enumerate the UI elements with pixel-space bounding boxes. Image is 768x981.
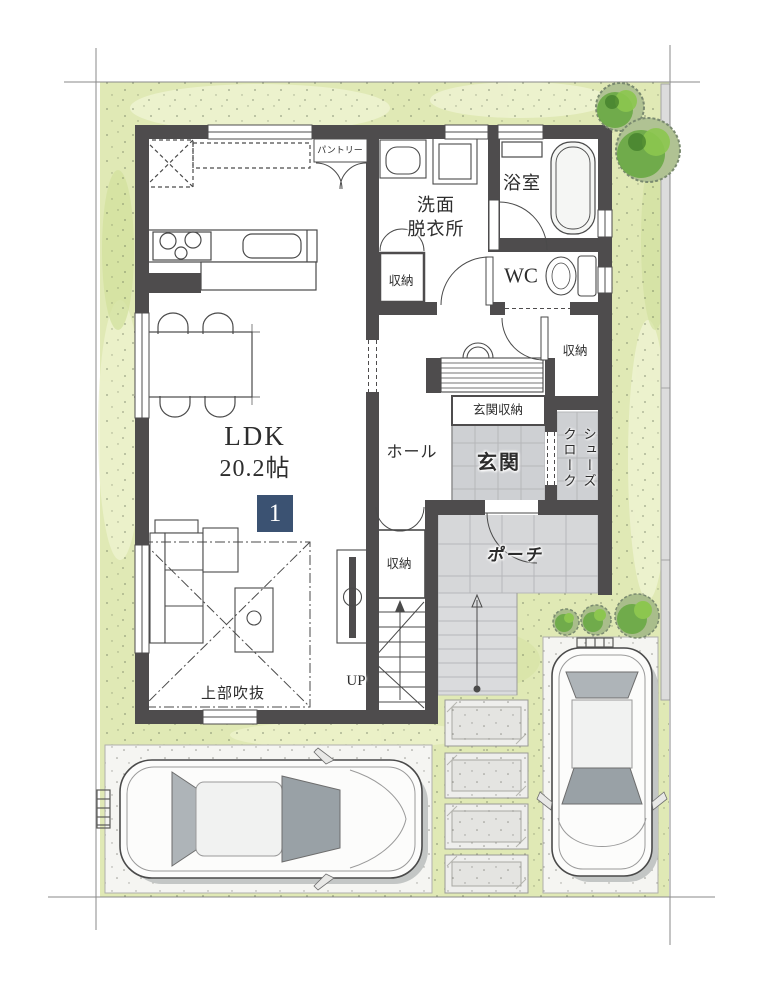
sofa-back bbox=[150, 533, 165, 643]
label-storage-stairs: 収納 bbox=[386, 558, 411, 572]
washbasin bbox=[380, 140, 426, 178]
ottoman bbox=[203, 528, 238, 572]
label-storage-washroom: 収納 bbox=[388, 275, 413, 289]
label-hall: ホール bbox=[386, 444, 437, 462]
floor-plan-page: パントリー 洗面 脱衣所 浴室 WC 収納 収納 収納 ホール 玄関 玄関収納 … bbox=[0, 0, 768, 981]
car-left bbox=[120, 748, 428, 890]
sofa-seat bbox=[165, 533, 203, 643]
label-shoes-cloak: シューズ クローク bbox=[556, 410, 598, 506]
label-void: 上部吹抜 bbox=[201, 686, 265, 703]
label-genkan-storage: 玄関収納 bbox=[473, 404, 523, 418]
label-wc: WC bbox=[504, 264, 538, 287]
toilet bbox=[546, 256, 596, 296]
counter-table bbox=[201, 262, 316, 290]
label-washroom-2: 脱衣所 bbox=[408, 220, 465, 240]
bush bbox=[553, 609, 579, 635]
bush bbox=[615, 594, 659, 638]
bush bbox=[581, 605, 611, 635]
car-right bbox=[537, 648, 667, 882]
label-ldk-size: 20.2帖 bbox=[220, 456, 291, 482]
label-washroom-1: 洗面 bbox=[417, 196, 455, 216]
bath-shelf bbox=[502, 142, 542, 157]
label-genkan: 玄関 bbox=[477, 452, 521, 474]
console-table bbox=[155, 520, 198, 533]
stepping-stones bbox=[445, 700, 528, 893]
bath-door-leaf bbox=[489, 200, 499, 250]
washing-machine bbox=[433, 138, 477, 184]
label-storage-hall: 収納 bbox=[562, 345, 587, 359]
hall-storage-door-leaf bbox=[541, 317, 548, 360]
label-bath: 浴室 bbox=[503, 174, 541, 194]
unit-number-badge: 1 bbox=[257, 495, 293, 532]
tree bbox=[616, 118, 680, 182]
label-pantry: パントリー bbox=[317, 146, 362, 156]
washroom-door-leaf bbox=[486, 257, 493, 305]
label-ldk: LDK bbox=[224, 422, 286, 452]
floor-plan-drawing bbox=[0, 0, 768, 981]
label-up: UP bbox=[346, 673, 365, 690]
label-porch: ポーチ bbox=[486, 547, 546, 566]
